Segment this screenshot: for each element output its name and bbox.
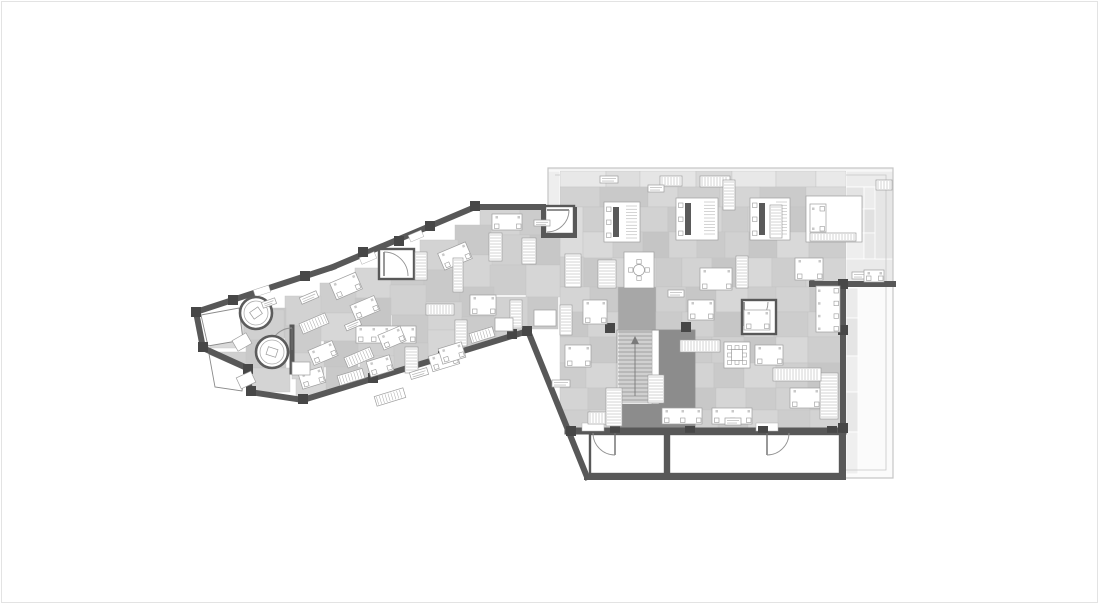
chair (834, 289, 839, 294)
chair (798, 274, 803, 279)
shelving-symbol (426, 304, 454, 315)
chair (637, 276, 641, 280)
furniture-outline (552, 380, 570, 387)
desk-item (818, 302, 821, 305)
structural-column (566, 426, 576, 436)
desk-item (710, 302, 713, 305)
shelving-symbol (415, 252, 427, 280)
chair (495, 224, 500, 229)
meeting-table-symbol (724, 342, 750, 368)
desk-item (603, 302, 606, 305)
desk-cluster-symbol (744, 310, 770, 330)
floor-tile (776, 287, 810, 312)
structural-column (191, 307, 201, 317)
desk-item (779, 347, 782, 350)
desk-item (569, 347, 572, 350)
chair (679, 217, 684, 222)
chair (727, 284, 732, 289)
shelving-symbol (773, 368, 821, 381)
desk-cluster-symbol (755, 345, 783, 365)
chair (753, 217, 758, 222)
chair (411, 337, 416, 342)
shelving-symbol (660, 176, 682, 186)
chair (434, 364, 440, 370)
chair (679, 203, 684, 208)
chair (834, 327, 839, 332)
structural-column (228, 295, 238, 305)
desk-item (692, 302, 695, 305)
desk-item (373, 328, 376, 331)
floor-tile (490, 265, 526, 295)
desk-item (812, 208, 815, 211)
chair (681, 418, 686, 423)
floor-tile (722, 207, 748, 232)
shelving-symbol (606, 388, 622, 426)
furniture-panel (495, 318, 513, 331)
desk-item (698, 410, 701, 413)
table-top (732, 350, 743, 361)
furniture-outline (534, 310, 556, 326)
desk-item (748, 312, 751, 315)
desk-item (716, 410, 719, 413)
structural-column (246, 386, 256, 396)
floor-tile (656, 258, 682, 287)
chair (735, 346, 739, 350)
furniture-outline (292, 362, 310, 375)
desk-item (732, 410, 735, 413)
furniture-outline (522, 238, 536, 264)
floor-tile (716, 388, 746, 410)
floor-tile (725, 232, 749, 258)
chair (387, 365, 393, 371)
chair (443, 356, 449, 362)
desk-item (474, 297, 477, 300)
desk-item (704, 270, 707, 273)
desk-item (818, 328, 821, 331)
floor-tile (714, 312, 744, 337)
desk-item (587, 302, 590, 305)
floor-tile (390, 285, 426, 315)
furniture-outline (725, 418, 741, 425)
partition-column (613, 207, 619, 237)
floor-tile (776, 171, 816, 187)
annotation-label (552, 380, 570, 387)
chair (303, 381, 309, 387)
shelving-symbol (770, 205, 782, 238)
desk-item (818, 290, 821, 293)
floor-tile (560, 388, 588, 410)
chair (815, 402, 820, 407)
furniture-outline (606, 388, 622, 426)
chair (834, 314, 839, 319)
light-zone-tile (846, 318, 858, 356)
structural-column (358, 247, 368, 257)
desk-cluster-symbol (662, 408, 702, 424)
chair (743, 353, 747, 357)
structural-column (425, 221, 435, 231)
desk-item (759, 347, 762, 350)
annotation-label (725, 418, 741, 425)
chair (758, 359, 763, 364)
chair (473, 309, 478, 314)
desk-item (666, 410, 669, 413)
furniture-panel (292, 362, 310, 375)
chair (371, 369, 377, 375)
furniture-outline (560, 305, 572, 335)
desk-item (492, 297, 495, 300)
chair (359, 337, 364, 342)
desk-cluster-symbol (565, 345, 591, 367)
chair (459, 352, 465, 358)
shelving-symbol (736, 256, 748, 288)
chair (879, 276, 884, 281)
floor-tile (590, 337, 618, 363)
furniture-outline (405, 347, 418, 373)
annex-room-right (669, 434, 840, 474)
chair (629, 268, 633, 272)
chair (834, 301, 839, 306)
furniture-outline (600, 176, 618, 183)
chair (747, 418, 752, 423)
desk-cluster-symbol (583, 300, 607, 324)
chair (747, 324, 752, 329)
chair (607, 207, 612, 212)
chair (665, 418, 670, 423)
structural-column (522, 326, 532, 336)
structural-column (198, 342, 208, 352)
chair (679, 231, 684, 236)
light-zone-tile (548, 171, 560, 205)
chair (753, 231, 758, 236)
chair (645, 268, 649, 272)
desk-item (868, 272, 871, 275)
chair (820, 227, 825, 232)
shelving-symbol (680, 340, 720, 352)
floor-tile (618, 287, 656, 330)
light-zone-tile (846, 288, 858, 318)
shelving-symbol (598, 260, 616, 288)
chair (715, 418, 720, 423)
desk-item (816, 390, 819, 393)
desk-cluster-symbol (864, 270, 884, 282)
desk-item (799, 260, 802, 263)
chair (820, 207, 825, 212)
furniture-outline (534, 220, 550, 226)
chair (793, 402, 798, 407)
structural-column (681, 322, 691, 332)
floor-tile (816, 171, 846, 187)
structural-column (394, 236, 404, 246)
floor-tile (560, 171, 606, 187)
floor-tile (560, 187, 600, 207)
desk-cluster-symbol (688, 300, 714, 320)
chair (691, 314, 696, 319)
column-desk-symbol (676, 198, 718, 240)
chair (743, 346, 747, 350)
shelving-symbol (820, 373, 838, 419)
desk-cluster-symbol (470, 295, 496, 315)
shelving-symbol (648, 375, 664, 403)
circular-pod (256, 336, 288, 368)
desk-item (818, 315, 821, 318)
chair (728, 353, 732, 357)
desk-item (819, 260, 822, 263)
chair (637, 260, 641, 264)
desk-cluster-symbol (795, 258, 823, 280)
floor-tile (526, 265, 560, 297)
chair (586, 318, 591, 323)
desk-item (812, 228, 815, 231)
furniture-outline (723, 180, 735, 210)
shelving-symbol (565, 254, 581, 287)
annex-room-left (590, 434, 665, 474)
shelving-symbol (810, 233, 856, 241)
chair (586, 361, 591, 366)
desk-item (748, 410, 751, 413)
desk-cluster-symbol (790, 388, 820, 408)
shelving-symbol (405, 347, 418, 373)
light-zone-tile (846, 432, 858, 474)
shelving-symbol (489, 233, 502, 261)
chair (703, 284, 708, 289)
chair (607, 220, 612, 225)
annotation-label (600, 176, 618, 183)
desk-item (766, 312, 769, 315)
chair (319, 377, 325, 383)
desk-cluster-symbol (700, 268, 732, 290)
desk-cluster-symbol (816, 286, 840, 332)
desk-item (794, 390, 797, 393)
desk-item (360, 328, 363, 331)
annotation-label (534, 220, 550, 226)
furniture-outline (668, 290, 684, 297)
structural-column (605, 323, 615, 333)
chair (743, 361, 747, 365)
chair (491, 309, 496, 314)
desk-item (682, 410, 685, 413)
floor-tile (732, 171, 776, 187)
chair (867, 276, 872, 281)
floor-tile (746, 388, 776, 410)
partition-column (759, 203, 765, 235)
desk-item (587, 347, 590, 350)
chair (709, 314, 714, 319)
light-zone-tile (846, 356, 858, 392)
chair (372, 337, 377, 342)
desk-item (518, 216, 521, 219)
chair (517, 224, 522, 229)
structural-column (470, 201, 480, 211)
desk-cluster-symbol (810, 204, 826, 232)
chair (728, 361, 732, 365)
furniture-panel (534, 310, 556, 326)
column-desk-symbol (604, 202, 640, 242)
structural-column (298, 394, 308, 404)
light-zone-tile (875, 187, 893, 259)
floor-tile (774, 312, 808, 337)
chair (568, 361, 573, 366)
partition-column (685, 203, 691, 235)
shelving-symbol (723, 180, 735, 210)
desk-item (880, 272, 883, 275)
chair (778, 359, 783, 364)
shelving-symbol (560, 305, 572, 335)
table-top (634, 265, 645, 276)
floor-plan-page (0, 0, 1099, 604)
annotation-label (648, 185, 664, 192)
furniture-outline (495, 318, 513, 331)
round-table-symbol (624, 252, 654, 288)
floor-plan-canvas (0, 0, 1099, 604)
shelving-symbol (876, 180, 892, 190)
furniture-outline (648, 185, 664, 192)
chair (697, 418, 702, 423)
desk-cluster-symbol (492, 214, 522, 230)
structural-column (838, 423, 848, 433)
shelving-symbol (522, 238, 536, 264)
desk-item (728, 270, 731, 273)
floor-tile (640, 207, 668, 232)
chair (607, 233, 612, 238)
chair (602, 318, 607, 323)
desk-item (386, 328, 389, 331)
chair (728, 346, 732, 350)
desk-item (496, 216, 499, 219)
desk-item (412, 328, 415, 331)
structural-column (300, 271, 310, 281)
annotation-label (668, 290, 684, 297)
shelving-symbol (453, 258, 463, 292)
chair (765, 324, 770, 329)
chair (735, 361, 739, 365)
chair (753, 203, 758, 208)
chair (818, 274, 823, 279)
